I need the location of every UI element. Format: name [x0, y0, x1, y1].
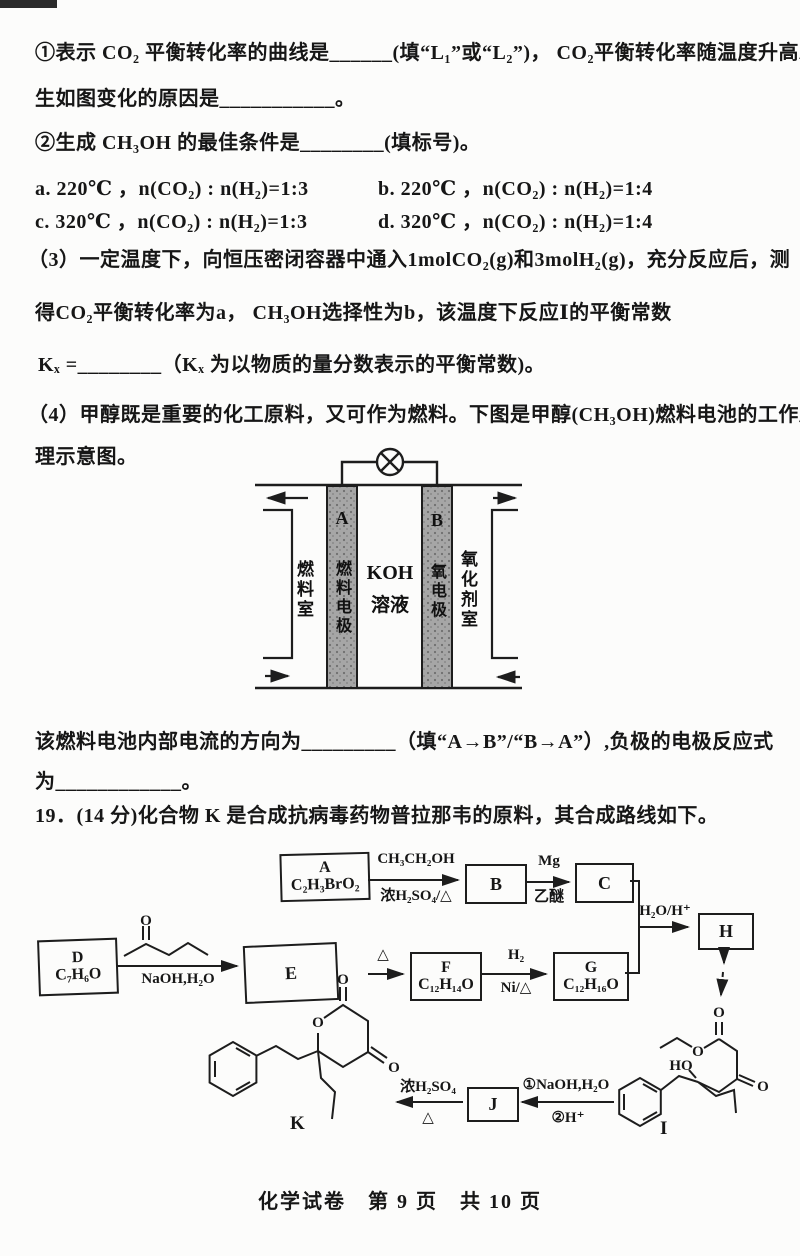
- q4-line4: 为____________。: [35, 765, 202, 794]
- compound-box-j: J: [467, 1087, 519, 1122]
- box-b-letter: B: [490, 875, 502, 894]
- box-c-letter: C: [598, 874, 611, 893]
- q3-line2: 得CO₂平衡转化率为a， CH₃OH选择性为b，该温度下反应Ⅰ的平衡常数: [35, 296, 672, 325]
- cond-ij-step2: ②H⁺: [528, 1108, 608, 1127]
- cond-jk-reagent: 浓H₂SO₄: [388, 1075, 468, 1096]
- circuit-wires: [342, 462, 437, 484]
- cond-ef-heat: △: [363, 945, 403, 964]
- pentanone-structure: [124, 926, 208, 956]
- electrode-a-letter: A: [327, 508, 357, 529]
- cond-fg-catalyst: Ni/△: [491, 978, 541, 997]
- q3-line1: （3）一定温度下，向恒压密闭容器中通入1molCO₂(g)和3molH₂(g)，…: [28, 243, 790, 272]
- q4-line2: 理示意图。: [35, 440, 138, 469]
- exam-page: ①表示 CO₂ 平衡转化率的曲线是______(填“L₁”或“L₂”)， CO₂…: [0, 0, 800, 1256]
- q18-sub2-line: ②生成 CH₃OH 的最佳条件是________(填标号)。: [35, 126, 480, 155]
- box-a-formula: C₂H₃BrO₂: [291, 876, 360, 895]
- compound-box-f: F C₁₂H₁₄O: [410, 952, 482, 1001]
- box-g-formula: C₁₂H₁₆O: [563, 977, 619, 994]
- cond-fg-reagent: H₂: [491, 947, 541, 964]
- q3-line3: Kₓ =________（Kₓ 为以物质的量分数表示的平衡常数)。: [38, 348, 545, 377]
- q4-line1: （4）甲醇既是重要的化工原料，又可作为燃料。下图是甲醇(CH₃OH)燃料电池的工…: [28, 398, 800, 427]
- cond-bc-solvent: 乙醚: [524, 885, 574, 906]
- lamp-icon: [377, 449, 403, 475]
- compound-box-h: H: [698, 913, 754, 950]
- k-ring-o-atom: O: [312, 1015, 324, 1031]
- cond-hydrolysis: H₂O/H⁺: [630, 901, 700, 920]
- i-hydroxyl-label: HO: [669, 1058, 692, 1074]
- box-f-formula: C₁₂H₁₄O: [418, 977, 474, 994]
- box-a-letter: A: [319, 860, 331, 877]
- cond-bc-reagent: Mg: [524, 853, 574, 870]
- fuel-cell-diagram: A 燃料电极 B 氧电极 燃料室 氧化剂室 KOH 溶液: [230, 440, 560, 700]
- i-ester-o-atom: O: [692, 1044, 704, 1060]
- cond-ij-step1: ①NaOH,H₂O: [516, 1075, 616, 1094]
- oxidant-chamber-label: 氧化剂室: [455, 537, 480, 642]
- box-h-letter: H: [719, 922, 733, 941]
- dashed-arrow-h-to-i: [721, 972, 723, 995]
- pentanone-o-atom: O: [140, 913, 152, 929]
- q19-intro: 19．(14 分)化合物 K 是合成抗病毒药物普拉那韦的原料，其合成路线如下。: [35, 799, 718, 828]
- box-g-letter: G: [585, 960, 597, 977]
- compound-k-label: K: [290, 1113, 305, 1135]
- electrode-b-letter: B: [422, 510, 452, 531]
- option-a: a. 220℃ ，n(CO₂) : n(H₂)=1:3: [35, 172, 309, 201]
- option-b: b. 220℃ ，n(CO₂) : n(H₂)=1:4: [378, 172, 653, 201]
- right-port-bracket: [492, 510, 518, 658]
- q4-line3: 该燃料电池内部电流的方向为_________（填“A→B”/“B→A”）,负极的…: [35, 725, 774, 754]
- box-d-formula: C₇H₆O: [55, 966, 102, 984]
- page-footer: 化学试卷 第 9 页 共 10 页: [0, 1185, 800, 1214]
- compound-box-c: C: [575, 863, 634, 903]
- cond-ab-condition: 浓H₂SO₄/△: [366, 884, 466, 905]
- compound-box-a: A C₂H₃BrO₂: [279, 852, 370, 902]
- synthesis-route-diagram: O O O O O O O HO A C₂H₃BrO₂ B C H D C₇H: [30, 835, 790, 1150]
- option-d: d. 320℃ ，n(CO₂) : n(H₂)=1:4: [378, 205, 653, 234]
- compound-k-structure: [210, 987, 387, 1119]
- i-ketone-o-atom: O: [757, 1079, 769, 1095]
- box-j-letter: J: [489, 1095, 498, 1114]
- electrode-b-name: 氧电极: [424, 544, 448, 639]
- koh-label-line1: KOH: [359, 562, 421, 585]
- koh-label-line2: 溶液: [359, 590, 421, 617]
- q18-sub1-line2: 生如图变化的原因是___________。: [35, 82, 356, 111]
- cond-ab-reagent: CH₃CH₂OH: [366, 851, 466, 868]
- compound-i-structure: [619, 1022, 755, 1126]
- electrode-a-name: 燃料电极: [329, 538, 353, 658]
- compound-box-e: E: [243, 942, 339, 1004]
- k-lactone-o-atom: O: [337, 972, 349, 988]
- compound-box-b: B: [465, 864, 527, 904]
- q18-sub1-line1: ①表示 CO₂ 平衡转化率的曲线是______(填“L₁”或“L₂”)， CO₂…: [35, 36, 800, 65]
- scan-artifact: [0, 0, 57, 8]
- i-ester-carbonyl-o-atom: O: [713, 1005, 725, 1021]
- compound-box-g: G C₁₂H₁₆O: [553, 952, 629, 1001]
- left-port-bracket: [263, 510, 292, 658]
- cond-de-reagent: NaOH,H₂O: [128, 971, 228, 988]
- option-c: c. 320℃ ，n(CO₂) : n(H₂)=1:3: [35, 205, 308, 234]
- k-ketone-o-atom: O: [388, 1060, 400, 1076]
- box-e-letter: E: [285, 963, 298, 982]
- compound-i-label: I: [660, 1118, 667, 1140]
- box-d-letter: D: [72, 950, 84, 967]
- compound-box-d: D C₇H₆O: [37, 938, 119, 997]
- fuel-chamber-label: 燃料室: [291, 545, 316, 635]
- box-f-letter: F: [441, 960, 451, 977]
- cond-jk-heat: △: [408, 1108, 448, 1127]
